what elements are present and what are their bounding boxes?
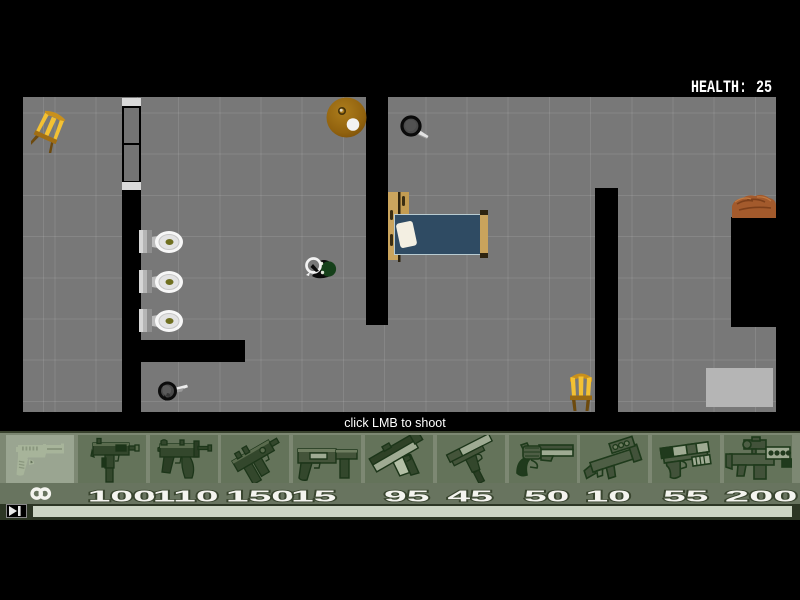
svg-text:150: 150 [226,487,294,505]
svg-text:95: 95 [384,487,429,505]
svg-text:200: 200 [725,487,798,505]
svg-text:50: 50 [524,487,569,505]
svg-text:10: 10 [585,487,630,505]
svg-text:15: 15 [291,487,336,505]
svg-text:110: 110 [153,487,219,505]
svg-text:45: 45 [448,487,493,505]
svg-text:100: 100 [88,487,156,505]
svg-text:55: 55 [663,487,708,505]
